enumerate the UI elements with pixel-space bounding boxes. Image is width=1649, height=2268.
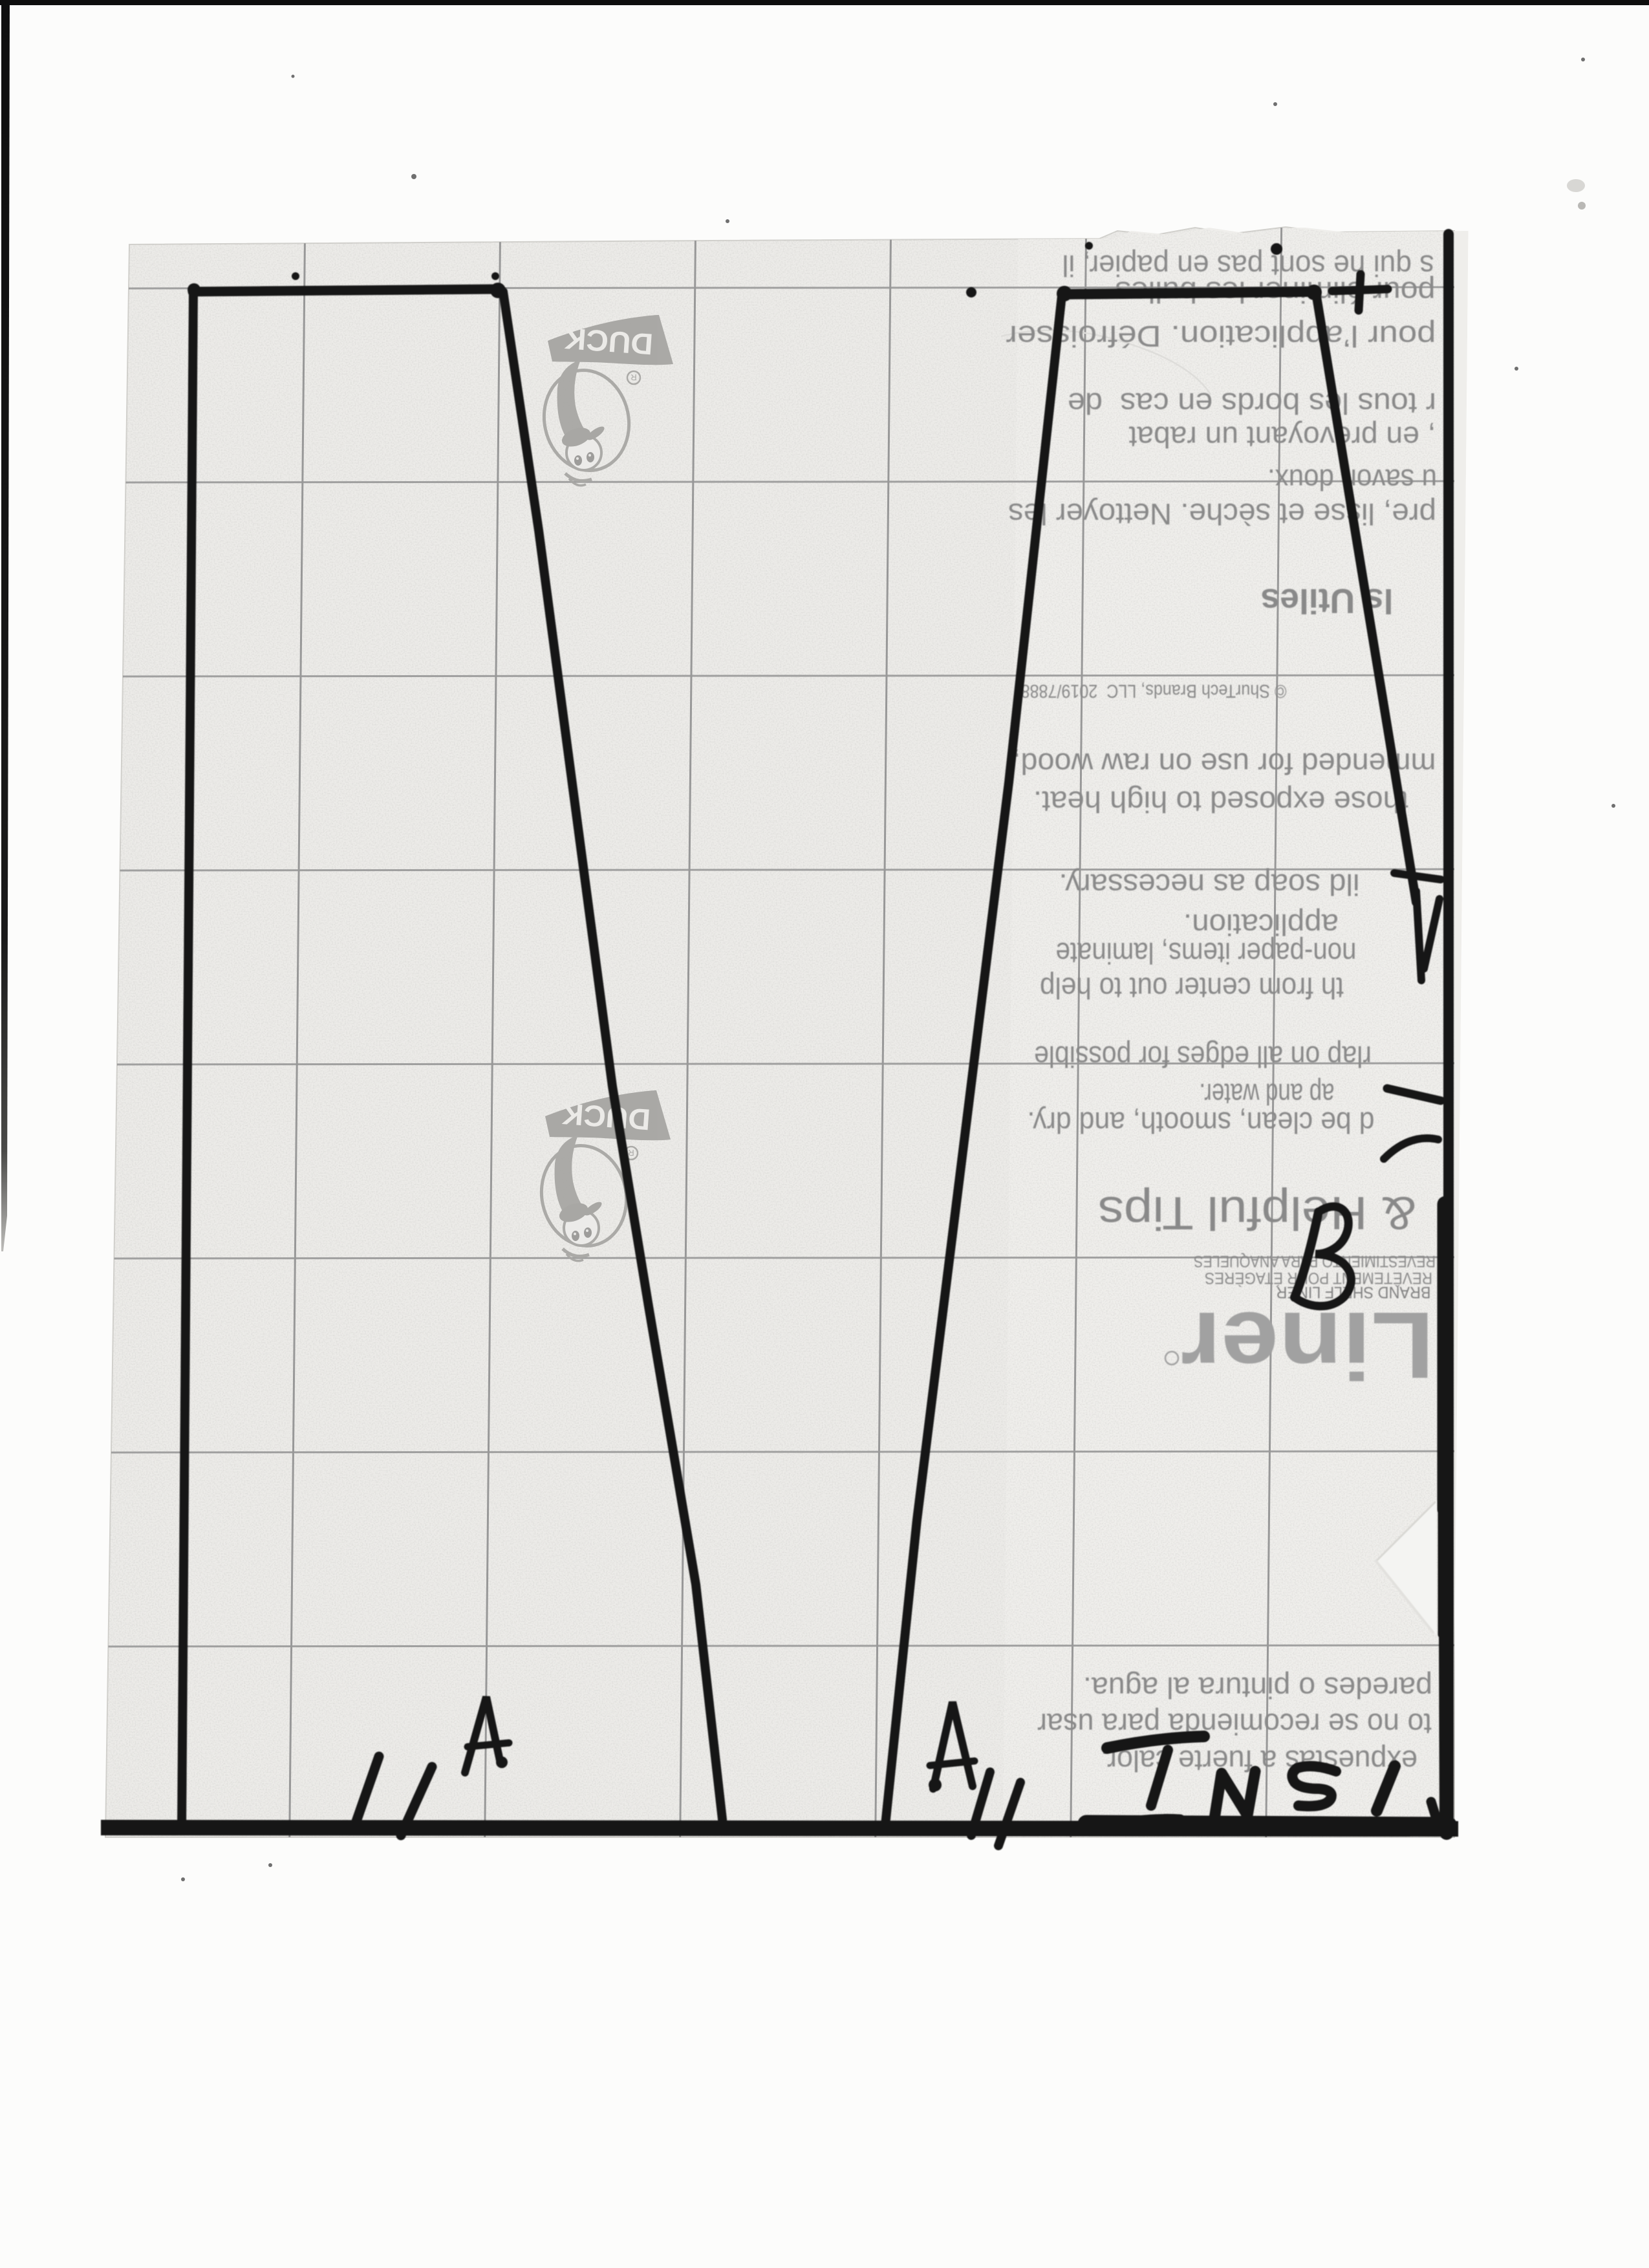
svg-text:non-paper items, laminate: non-paper items, laminate: [1056, 936, 1357, 970]
svg-text:Liner: Liner: [1181, 1293, 1434, 1398]
svg-text:R: R: [630, 373, 636, 382]
svg-text:th from center out to help: th from center out to help: [1040, 971, 1344, 1005]
svg-text:r tous les bords en cas de: r tous les bords en cas de: [1068, 387, 1436, 420]
svg-text:ild soap as necessary.: ild soap as necessary.: [1059, 868, 1360, 902]
svg-text:& Helpful Tips: & Helpful Tips: [1098, 1187, 1416, 1238]
svg-text:© ShurTech Brands, LLC 2019/7: © ShurTech Brands, LLC 2019/7888: [1021, 680, 1287, 701]
svg-text:REVESTIMIENTO PARA ANAQUELES: REVESTIMIENTO PARA ANAQUELES: [1194, 1252, 1436, 1270]
svg-text:DUCK: DUCK: [563, 321, 654, 361]
svg-text:d be clean, smooth, and dry.: d be clean, smooth, and dry.: [1028, 1106, 1375, 1139]
svg-text:those exposed to high heat.: those exposed to high heat.: [1033, 785, 1408, 819]
svg-text:pre, lisse et sèche. Nettoyer: pre, lisse et sèche. Nettoyer les: [1008, 497, 1436, 531]
svg-text:rlap on all edges for possible: rlap on all edges for possible: [1034, 1040, 1372, 1074]
svg-text:mmended for use on raw wood,: mmended for use on raw wood,: [1013, 747, 1436, 781]
svg-text:paredes o pintura al agua.: paredes o pintura al agua.: [1083, 1671, 1432, 1705]
svg-text:to no se recomienda para usar: to no se recomienda para usar: [1037, 1707, 1432, 1741]
svg-text:, en prévoyant un rabat: , en prévoyant un rabat: [1128, 420, 1436, 454]
svg-text:pour l’application. Défroisser: pour l’application. Défroisser: [1006, 319, 1436, 353]
